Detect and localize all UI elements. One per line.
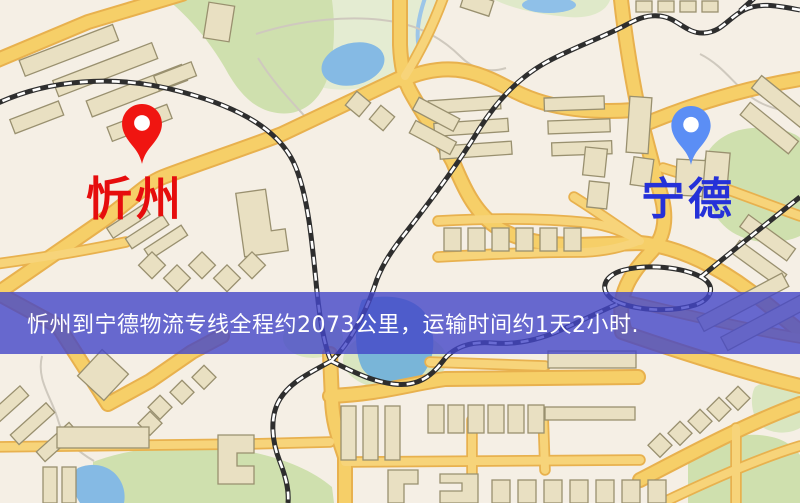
map-screenshot: 忻州 宁德 忻州到宁德物流专线全程约2073公里，运输时间约1天2小时. xyxy=(0,0,800,503)
origin-pin-hole xyxy=(134,115,150,131)
origin-pin-shape xyxy=(122,104,162,164)
map-canvas xyxy=(0,0,800,503)
origin-marker[interactable] xyxy=(121,101,163,168)
destination-pin-hole xyxy=(683,117,699,133)
route-info-text: 忻州到宁德物流专线全程约2073公里，运输时间约1天2小时. xyxy=(27,307,639,339)
destination-marker[interactable] xyxy=(669,105,713,167)
destination-label: 宁德 xyxy=(641,178,735,222)
route-info-banner: 忻州到宁德物流专线全程约2073公里，运输时间约1天2小时. xyxy=(0,292,800,354)
origin-label: 忻州 xyxy=(86,176,184,222)
destination-pin-shape xyxy=(671,106,710,165)
